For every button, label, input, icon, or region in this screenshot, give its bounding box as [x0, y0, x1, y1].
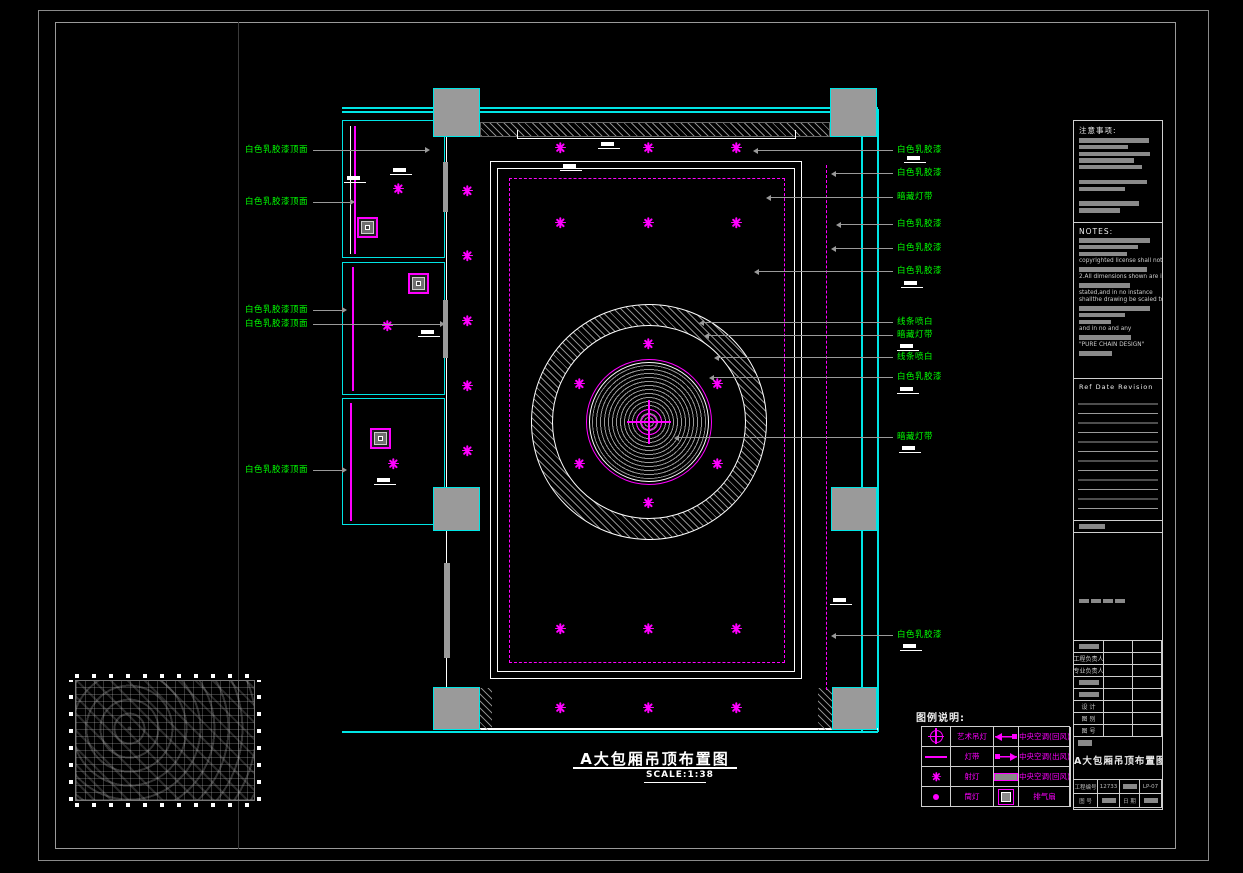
finish-callout: 白色乳胶漆 — [897, 631, 942, 640]
leader-arrow — [766, 195, 771, 201]
revision-header: Ref Date Revision — [1079, 383, 1162, 391]
info-cell — [1120, 780, 1140, 793]
note-text: 2.All dimensions shown are in — [1079, 274, 1162, 281]
leader-arrow — [425, 147, 430, 153]
column — [433, 487, 480, 531]
signature-row: 图 别 — [1074, 713, 1162, 725]
finish-callout: 白色乳胶漆 — [897, 373, 942, 382]
leader-arrow — [831, 171, 836, 177]
info-cell: 12733 — [1098, 780, 1120, 793]
redacted-text-bar — [1079, 138, 1149, 143]
drawing-scale-underline — [644, 782, 706, 783]
elevation-tag — [901, 281, 923, 290]
hatched-wall — [818, 688, 832, 730]
key-plan-ticks-right — [257, 680, 261, 801]
leader-line — [708, 335, 893, 336]
note-text: stated,and in no instance — [1079, 290, 1162, 297]
elevation-tag — [560, 164, 582, 173]
wall-line — [342, 107, 878, 109]
signature-table: 工程负责人专业负责人设 计图 别图 号 — [1074, 641, 1162, 737]
info-cell: 工程编号 — [1074, 780, 1098, 793]
signature-cell — [1104, 665, 1133, 676]
legend-symbol-cell — [922, 727, 951, 747]
leader-arrow — [753, 148, 758, 154]
leader-line — [313, 470, 342, 471]
sheet-title-area: A大包厢吊顶布置图 — [1074, 737, 1162, 780]
elevation-tag — [830, 598, 852, 607]
elevation-tag — [900, 644, 922, 653]
finish-callout: 白色乳胶漆顶面 — [245, 466, 311, 475]
notes-section: NOTES: copyrighted license shall not2.Al… — [1074, 223, 1162, 379]
legend-symbol-cell — [922, 767, 951, 787]
signature-row: 专业负责人 — [1074, 665, 1162, 677]
spotlight-symbol — [462, 380, 473, 391]
light-strip-icon — [925, 756, 947, 758]
finish-callout: 白色乳胶漆 — [897, 220, 942, 229]
leader-line — [678, 437, 893, 438]
spotlight-symbol — [555, 217, 566, 228]
redacted-text-bar — [1079, 201, 1139, 206]
signature-row: 工程负责人 — [1074, 653, 1162, 665]
legend-label: 中央空调(出风) — [1019, 747, 1071, 767]
legend-symbol-cell — [994, 727, 1019, 747]
spotlight-symbol — [388, 458, 399, 469]
revision-section: Ref Date Revision — [1074, 379, 1162, 521]
column — [433, 687, 480, 730]
signature-cell — [1104, 653, 1133, 664]
signature-cell — [1133, 677, 1162, 688]
gap — [1074, 172, 1162, 178]
info-row: 工程编号12733LP-07 — [1074, 780, 1162, 794]
notes-body: copyrighted license shall not2.All dimen… — [1074, 238, 1162, 356]
elevation-tag — [899, 446, 921, 455]
spotlight-symbol — [462, 315, 473, 326]
info-cell: 日 期 — [1120, 794, 1140, 807]
signature-cell: 设 计 — [1074, 701, 1104, 712]
redacted-text-bar — [1079, 283, 1130, 288]
spotlight-symbol — [643, 702, 654, 713]
design-unit-glyphs — [1079, 597, 1127, 605]
stamp-row — [1074, 521, 1162, 533]
signature-cell — [1074, 689, 1104, 700]
finish-callout: 暗藏灯带 — [897, 193, 933, 202]
leader-arrow — [699, 320, 704, 326]
legend-symbol-cell — [922, 787, 951, 807]
leader-line — [703, 322, 893, 323]
signature-cell: 图 别 — [1074, 713, 1104, 724]
signature-cell — [1104, 713, 1133, 724]
caution-section: 注意事项: — [1074, 121, 1162, 223]
redacted-text-bar — [1079, 238, 1150, 243]
spotlight-symbol — [555, 623, 566, 634]
spotlight-symbol — [462, 445, 473, 456]
drawing-title-underline — [573, 767, 737, 769]
legend-symbol-cell — [994, 747, 1019, 767]
signature-cell — [1104, 725, 1133, 736]
leader-line — [313, 150, 425, 151]
light-strip-symbol — [350, 403, 352, 521]
leader-line — [718, 357, 893, 358]
redacted-text-bar — [1079, 252, 1127, 257]
redacted-text-bar — [1079, 313, 1125, 318]
note-text: and in no and any — [1079, 326, 1162, 333]
leader-arrow — [831, 633, 836, 639]
key-plan-ticks-bottom — [75, 803, 255, 807]
finish-callout: 白色乳胶漆 — [897, 267, 942, 276]
signature-row — [1074, 641, 1162, 653]
redacted-text-bar — [1079, 180, 1147, 185]
finish-callout: 白色乳胶漆顶面 — [245, 306, 311, 315]
spotlight-symbol — [462, 185, 473, 196]
signature-row — [1074, 677, 1162, 689]
title-block-sheet-name: A大包厢吊顶布置图 — [1074, 753, 1162, 767]
elevation-tag — [390, 168, 412, 177]
finish-callout: 暗藏灯带 — [897, 433, 933, 442]
elevation-tag — [904, 156, 926, 165]
door-leaf — [443, 162, 448, 212]
exhaust-fan-icon — [998, 789, 1014, 805]
finish-callout: 线条喷白 — [897, 318, 933, 327]
signature-cell — [1133, 701, 1162, 712]
note-text: shallthe drawing be scaled to — [1079, 297, 1162, 304]
spotlight-symbol — [731, 142, 742, 153]
spotlight-symbol — [555, 142, 566, 153]
legend-symbol-cell — [922, 747, 951, 767]
spotlight-symbol — [643, 338, 654, 349]
art-chandelier-icon — [930, 730, 943, 743]
redacted-text-bar — [1079, 267, 1147, 272]
ac-supply-icon — [995, 752, 1017, 761]
signature-cell — [1104, 641, 1133, 652]
light-strip-symbol — [354, 126, 356, 254]
column — [830, 88, 877, 137]
signature-cell: 图 号 — [1074, 725, 1104, 736]
redacted-text-bar — [1079, 524, 1105, 529]
signature-cell — [1074, 677, 1104, 688]
leader-arrow — [704, 333, 709, 339]
legend-symbol-cell — [994, 767, 1019, 787]
legend-label: 排气扇 — [1019, 787, 1071, 807]
redacted-text-bar — [1078, 740, 1092, 746]
legend-symbol-cell — [994, 787, 1019, 807]
leader-arrow — [714, 355, 719, 361]
spotlight-symbol — [555, 702, 566, 713]
signature-cell: 工程负责人 — [1074, 653, 1104, 664]
elevation-tag — [418, 330, 440, 339]
info-row: 图 号日 期 — [1074, 794, 1162, 808]
signature-table-section: 工程负责人专业负责人设 计图 别图 号 — [1074, 641, 1162, 737]
signature-row — [1074, 689, 1162, 701]
spotlight-icon — [931, 772, 940, 781]
leader-line — [313, 202, 350, 203]
finish-callout: 白色乳胶漆 — [897, 169, 942, 178]
signature-cell — [1133, 641, 1162, 652]
cornice-line — [517, 130, 518, 139]
light-strip-symbol — [352, 267, 354, 391]
redacted-text-bar — [1079, 187, 1125, 192]
signature-cell: 专业负责人 — [1074, 665, 1104, 676]
wall-line — [342, 731, 878, 733]
signature-cell — [1133, 725, 1162, 736]
leader-arrow — [674, 435, 679, 441]
redacted-text-bar — [1079, 335, 1131, 340]
leader-line — [770, 197, 893, 198]
spotlight-symbol — [393, 183, 404, 194]
elevation-tag — [598, 142, 620, 151]
leader-arrow — [754, 269, 759, 275]
finish-callout: 白色乳胶漆顶面 — [245, 320, 311, 329]
redacted-text-bar — [1079, 145, 1128, 150]
leader-arrow — [342, 467, 347, 473]
legend-header: 图例说明: — [916, 709, 965, 724]
spotlight-symbol — [382, 320, 393, 331]
centerline — [826, 165, 827, 690]
caution-body — [1074, 138, 1162, 212]
column — [831, 487, 877, 531]
leader-arrow — [350, 199, 355, 205]
redacted-text-bar — [1079, 245, 1138, 250]
signature-cell — [1133, 689, 1162, 700]
info-cell: LP-07 — [1140, 780, 1162, 793]
leader-arrow — [836, 222, 841, 228]
ac-grille-icon — [994, 773, 1018, 781]
spotlight-symbol — [643, 497, 654, 508]
wall-line — [861, 109, 863, 732]
finish-callout: 白色乳胶漆顶面 — [245, 198, 311, 207]
spotlight-symbol — [731, 702, 742, 713]
finish-callout: 白色乳胶漆 — [897, 244, 942, 253]
title-block-panel: 注意事项: NOTES: copyrighted license shall n… — [1073, 120, 1163, 810]
signature-cell — [1133, 665, 1162, 676]
column — [832, 687, 877, 730]
leader-arrow — [342, 307, 347, 313]
redacted-text-bar — [1079, 152, 1150, 157]
spotlight-symbol — [462, 250, 473, 261]
design-unit-section — [1074, 533, 1162, 641]
info-cell: 图 号 — [1074, 794, 1098, 807]
leader-line — [835, 635, 893, 636]
drawing-scale: SCALE:1:38 — [646, 770, 714, 780]
finish-callout: 白色乳胶漆 — [897, 146, 942, 155]
spotlight-symbol — [731, 623, 742, 634]
spotlight-symbol — [574, 378, 585, 389]
leader-arrow — [440, 321, 445, 327]
drawing-title: A大包厢吊顶布置图 — [520, 748, 790, 769]
notes-header: NOTES: — [1079, 227, 1162, 236]
exhaust-fan-symbol — [408, 273, 429, 294]
legend-label: 中央空调(回风) — [1019, 767, 1071, 787]
leader-line — [835, 173, 893, 174]
wall-line — [342, 111, 878, 113]
signature-cell — [1133, 653, 1162, 664]
wall-line — [877, 109, 879, 732]
spotlight-symbol — [643, 142, 654, 153]
room-outline — [342, 262, 445, 395]
leader-line — [835, 248, 893, 249]
redacted-text-bar — [1079, 320, 1111, 325]
note-text: "PURE CHAIN DESIGN" — [1079, 342, 1162, 349]
signature-cell — [1104, 677, 1133, 688]
strip-edge-line — [350, 126, 351, 254]
hatched-wall — [480, 122, 830, 137]
finish-callout: 白色乳胶漆顶面 — [245, 146, 311, 155]
signature-cell — [1074, 641, 1104, 652]
leader-line — [758, 271, 893, 272]
leader-line — [757, 150, 893, 151]
spotlight-symbol — [731, 217, 742, 228]
spotlight-symbol — [643, 623, 654, 634]
door-leaf — [443, 300, 448, 358]
redacted-text-bar — [1079, 165, 1142, 170]
signature-cell — [1104, 701, 1133, 712]
elevation-tag — [374, 478, 396, 487]
signature-row: 图 号 — [1074, 725, 1162, 737]
legend-label: 射灯 — [951, 767, 994, 787]
hatched-wall — [480, 688, 492, 730]
elevation-tag — [344, 176, 366, 185]
leader-line — [313, 310, 342, 311]
legend-table: 艺术吊灯中央空调(回风)灯带中央空调(出风)射灯中央空调(回风)筒灯排气扇 — [921, 726, 1070, 807]
revision-rule-lines — [1078, 395, 1158, 516]
leader-arrow — [709, 375, 714, 381]
wall-line — [435, 728, 878, 730]
finish-callout: 线条喷白 — [897, 353, 933, 362]
signature-cell — [1133, 713, 1162, 724]
chandelier-inner-circle — [641, 414, 657, 430]
cornice-line — [795, 130, 796, 139]
key-plan-body — [75, 680, 255, 801]
ac-return-icon — [995, 732, 1017, 741]
elevation-tag — [897, 387, 919, 396]
exhaust-fan-symbol — [357, 217, 378, 238]
signature-row: 设 计 — [1074, 701, 1162, 713]
redacted-text-bar — [1079, 306, 1150, 311]
redacted-text-bar — [1079, 158, 1134, 163]
cornice-line — [517, 138, 795, 139]
signature-cell — [1104, 689, 1133, 700]
cad-sheet: 白色乳胶漆白色乳胶漆暗藏灯带白色乳胶漆白色乳胶漆白色乳胶漆线条喷白暗藏灯带线条喷… — [0, 0, 1243, 873]
downlight-icon — [933, 794, 939, 800]
spotlight-symbol — [712, 458, 723, 469]
info-cell — [1140, 794, 1162, 807]
leader-line — [313, 324, 440, 325]
legend-label: 中央空调(回风) — [1019, 727, 1071, 747]
caution-header: 注意事项: — [1079, 125, 1162, 136]
redacted-text-bar — [1079, 208, 1120, 213]
leader-line — [840, 224, 893, 225]
spotlight-symbol — [643, 217, 654, 228]
note-text: copyrighted license shall not — [1079, 258, 1162, 265]
redacted-text-bar — [1079, 351, 1112, 356]
legend-label: 筒灯 — [951, 787, 994, 807]
finish-callout: 暗藏灯带 — [897, 331, 933, 340]
key-plan-ticks-left — [69, 680, 73, 801]
info-rows: 工程编号12733LP-07图 号日 期 — [1074, 780, 1162, 809]
legend-label: 艺术吊灯 — [951, 727, 994, 747]
info-cell — [1098, 794, 1120, 807]
door-leaf — [444, 563, 450, 658]
leader-line — [713, 377, 893, 378]
gap — [1074, 193, 1162, 199]
legend-label: 灯带 — [951, 747, 994, 767]
spotlight-symbol — [574, 458, 585, 469]
exhaust-fan-symbol — [370, 428, 391, 449]
leader-arrow — [831, 246, 836, 252]
key-plan-ticks-top — [75, 674, 255, 678]
column — [433, 88, 480, 137]
